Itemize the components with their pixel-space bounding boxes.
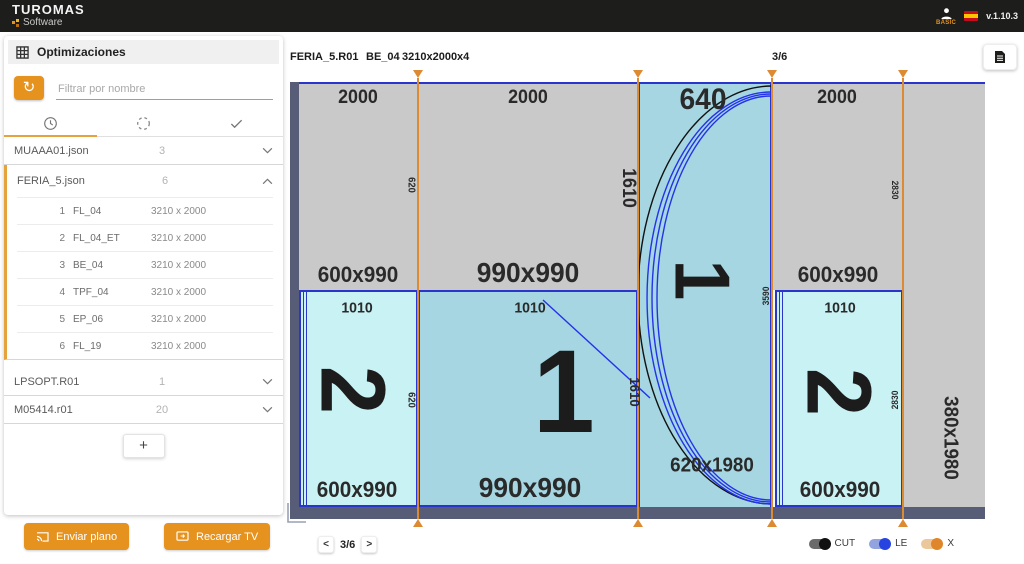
cut-line-4 [902,78,904,519]
pagination-label: 3/6 [340,539,355,551]
cut-arrow-icon [413,70,423,78]
group-name: FERIA_5.json [17,175,135,187]
logo-title: TUROMAS [12,3,85,17]
tv-icon [176,531,189,542]
item-name: FL_04_ET [73,233,151,244]
reload-tv-label: Recargar TV [196,531,258,543]
list-group-muaaa01[interactable]: MUAAA01.json 3 [4,137,283,165]
piece-size-label: 600x990 [318,262,399,288]
cut-arrow-icon [898,519,908,527]
toggle-knob [879,538,891,550]
cut-toggle[interactable]: CUT [809,538,856,549]
group-name: LPSOPT.R01 [14,376,132,388]
group-header-feria5[interactable]: FERIA_5.json 6 [7,165,283,197]
cut-pos-label: 2830 [890,391,900,410]
piece-count-digit: 2 [300,366,405,410]
cut-line-1 [417,78,419,519]
report-button[interactable] [983,44,1017,70]
toggle-track [921,539,941,549]
sidebar-title: Optimizaciones [37,45,126,59]
cut-arrow-icon [413,519,423,527]
chevron-up-icon[interactable] [262,178,273,185]
group-name: M05414.r01 [14,404,132,416]
piece-size-label: 620x1980 [670,455,754,478]
reload-tv-button[interactable]: Recargar TV [164,523,270,550]
cut-pos-label: 2830 [890,181,900,200]
item-name: BE_04 [73,260,151,271]
x-toggle-label: X [947,538,954,549]
piece-size-label: 990x990 [477,257,579,289]
piece-count-digit: 2 [786,368,891,412]
piece-size-label: 600x990 [798,262,879,288]
group-count: 1 [132,376,192,388]
list-group-feria5: FERIA_5.json 6 1 FL_04 3210 x 2000 2 FL_… [4,165,283,360]
prev-page-button[interactable]: < [318,536,334,553]
cut-pos-label: 620 [406,177,417,193]
user-account-button[interactable]: BASIC [936,7,956,26]
top-bar: TUROMAS Software BASIC v.1.10.3 [0,0,1024,32]
list-item[interactable]: 3 BE_04 3210 x 2000 [17,251,273,278]
piece-size-label: 600x990 [800,477,881,503]
dim-label: 2000 [817,87,857,109]
group-count: 6 [135,175,195,187]
piece-dim-label: 1010 [341,300,372,317]
item-size: 3210 x 2000 [151,233,206,244]
logo-subtitle: Software [23,17,62,29]
grid-icon [16,46,29,59]
item-number: 6 [17,341,65,352]
cut-arrow-icon [898,70,908,78]
list-group-m05414[interactable]: M05414.r01 20 [4,396,283,424]
waste-region-top3 [772,84,985,290]
spinner-icon [136,116,151,131]
group-count: 3 [132,145,192,157]
app-window: TUROMAS Software BASIC v.1.10.3 Optimiza… [0,0,1024,564]
list-item[interactable]: 2 FL_04_ET 3210 x 2000 [17,224,273,251]
tab-pending[interactable] [4,110,97,136]
waste-region-top1 [299,84,418,290]
le-toggle-label: LE [895,538,907,549]
sheet-size: 3210x2000x4 [402,51,469,63]
cut-pos-label: 1610 [617,168,639,208]
check-icon [229,116,244,131]
item-name: EP_06 [73,314,151,325]
display-toggles: CUT LE X [809,538,954,549]
cut-line-3 [771,78,773,519]
list-item[interactable]: 6 FL_19 3210 x 2000 [17,332,273,359]
chevron-down-icon[interactable] [262,378,273,385]
cut-pos-label: 620 [406,392,417,408]
cut-pos-label: 1610 [627,377,643,406]
page-indicator: 3/6 [772,51,787,63]
piece-dim-label: 1010 [824,300,855,317]
turomas-logo: TUROMAS Software [12,3,85,29]
item-size: 3210 x 2000 [151,314,206,325]
cutting-plan-diagram: 2000 2000 640 2000 620 620 1610 1610 359… [285,70,990,532]
piece-count-digit: 1 [533,324,591,460]
sheet-left-edge [290,82,299,507]
plan-name: FERIA_5.R01 [290,51,358,63]
toggle-knob [819,538,831,550]
item-number: 4 [17,287,65,298]
group-count: 20 [132,404,192,416]
tab-processing[interactable] [97,110,190,136]
item-number: 1 [17,206,65,217]
group-name: MUAAA01.json [14,145,132,157]
optimizations-sidebar: Optimizaciones ↻ MUAAA01.json 3 [4,36,283,515]
cut-toggle-label: CUT [835,538,856,549]
cast-icon [36,531,49,542]
item-name: FL_04 [73,206,151,217]
send-plan-button[interactable]: Enviar plano [24,523,129,550]
toggle-track [809,539,829,549]
refresh-button[interactable]: ↻ [14,76,44,100]
piece-count-digit: 1 [657,259,748,296]
sheet-pagination: < 3/6 > [318,536,377,553]
language-flag-icon[interactable] [964,11,978,21]
cut-arrow-icon [767,70,777,78]
toggle-track [869,539,889,549]
logo-pixels-icon [12,19,20,27]
clock-icon [43,116,58,131]
piece-size-label: 380x1980 [939,396,962,480]
filter-input[interactable] [56,79,273,100]
cut-pos-label: 3590 [761,287,771,306]
sidebar-header: Optimizaciones [8,40,279,64]
dim-label: 2000 [338,87,378,109]
document-icon [994,50,1006,64]
item-name: TPF_04 [73,287,151,298]
item-number: 2 [17,233,65,244]
dim-label: 2000 [508,87,548,109]
list-item[interactable]: 4 TPF_04 3210 x 2000 [17,278,273,305]
user-icon [940,7,953,20]
chevron-down-icon[interactable] [262,406,273,413]
app-version: v.1.10.3 [986,11,1018,21]
item-size: 3210 x 2000 [151,287,206,298]
item-size: 3210 x 2000 [151,341,206,352]
send-plan-label: Enviar plano [56,531,117,543]
item-name: FL_19 [73,341,151,352]
item-size: 3210 x 2000 [151,260,206,271]
cut-arrow-icon [767,519,777,527]
next-page-button[interactable]: > [361,536,377,553]
piece-dim-label: 1010 [514,300,545,317]
list-item[interactable]: 1 FL_04 3210 x 2000 [17,197,273,224]
x-toggle[interactable]: X [921,538,954,549]
dim-label: 640 [679,83,726,117]
status-tabs [4,110,283,137]
item-number: 3 [17,260,65,271]
cut-arrow-icon [633,519,643,527]
item-size: 3210 x 2000 [151,206,206,217]
piece-name: BE_04 [366,51,400,63]
piece-size-label: 600x990 [317,477,398,503]
plan-header: FERIA_5.R01 BE_04 3210x2000x4 3/6 [290,48,1020,66]
user-plan-badge: BASIC [936,20,956,26]
item-number: 5 [17,314,65,325]
cut-arrow-icon [633,70,643,78]
le-toggle[interactable]: LE [869,538,907,549]
optimization-list: MUAAA01.json 3 FERIA_5.json 6 1 FL_04 32… [4,137,283,468]
add-optimization-button[interactable]: + [123,434,165,458]
toggle-knob [931,538,943,550]
tab-done[interactable] [190,110,283,136]
list-group-lpsopt[interactable]: LPSOPT.R01 1 [4,368,283,396]
list-item[interactable]: 5 EP_06 3210 x 2000 [17,305,273,332]
chevron-down-icon[interactable] [262,147,273,154]
piece-size-label: 990x990 [479,472,581,504]
cut-line-2 [637,78,639,519]
